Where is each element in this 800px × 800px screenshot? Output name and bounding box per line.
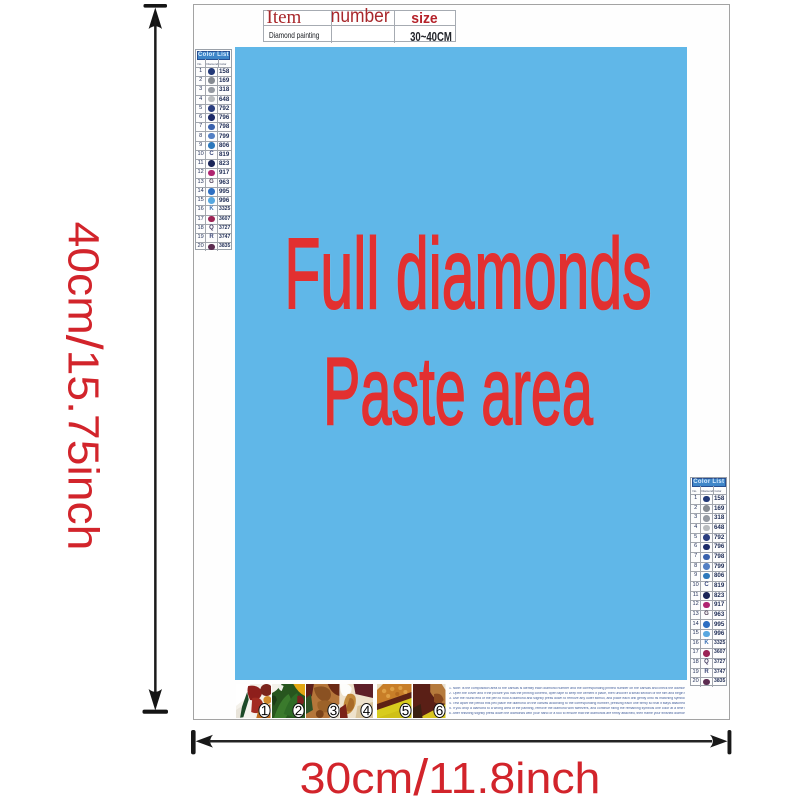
- svg-text:1: 1: [260, 703, 268, 718]
- svg-text:2: 2: [295, 703, 303, 718]
- svg-text:5: 5: [401, 703, 409, 718]
- svg-text:3: 3: [329, 703, 337, 718]
- svg-text:6: 6: [435, 703, 443, 718]
- svg-text:4: 4: [363, 703, 371, 718]
